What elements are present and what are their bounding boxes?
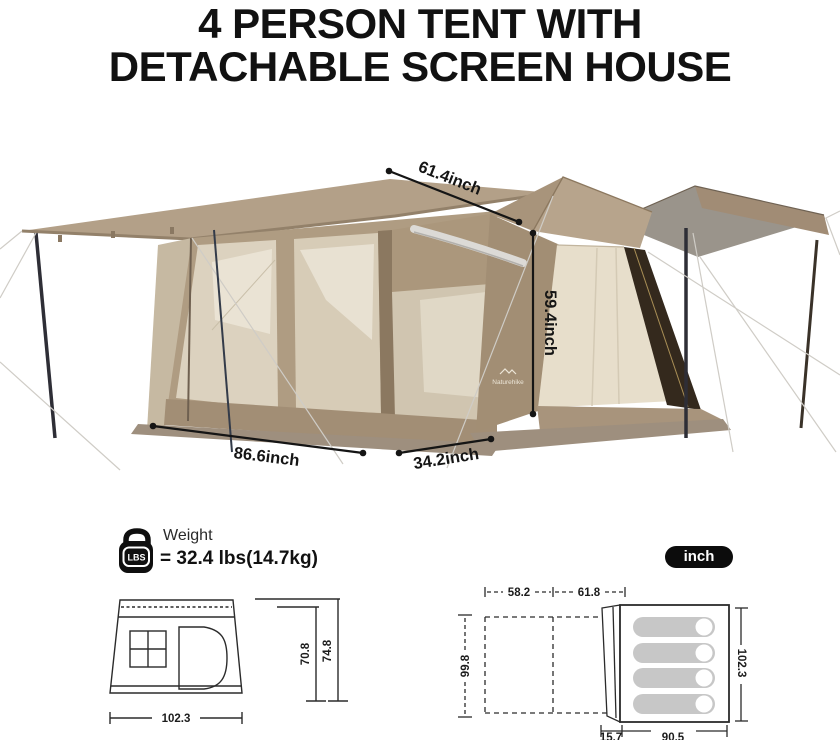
sleeping-pad xyxy=(633,643,715,663)
screen-width-label: 86.6inch xyxy=(233,444,301,470)
product-infographic: 4 PERSON TENT WITH DETACHABLE SCREEN HOU… xyxy=(0,0,840,740)
awning-tab xyxy=(170,227,174,234)
porch-footprint xyxy=(602,605,620,722)
weight-spec: Weight = 32.4 lbs(14.7kg) xyxy=(163,527,318,570)
lbs-label: LBS xyxy=(128,553,146,563)
graphics-canvas: Naturehike xyxy=(0,0,840,740)
mesh-highlight xyxy=(420,292,486,398)
sleeping-pad xyxy=(633,694,715,714)
awning-tab xyxy=(58,235,62,242)
unit-badge: inch xyxy=(665,546,733,568)
height-label: 59.4inch xyxy=(541,290,559,356)
tarp-pole xyxy=(36,233,55,438)
screen-depth-label: 99.8 xyxy=(460,654,472,677)
porch-depth-label: 15.7 xyxy=(600,732,622,740)
window-drawing xyxy=(130,631,166,667)
weight-value: = 32.4 lbs(14.7kg) xyxy=(160,547,318,570)
sleeping-pad xyxy=(633,668,715,688)
peak-height-label: 74.8 xyxy=(322,639,334,662)
dim-screen-sections: 58.2 61.8 xyxy=(485,587,625,599)
door-drawing xyxy=(179,627,227,689)
screen-section-b-label: 61.8 xyxy=(578,587,601,599)
dim-tent-depth: 102.3 xyxy=(735,608,748,721)
dim-bottom: 15.7 90.5 xyxy=(600,725,727,740)
weight-kettlebell-icon: LBS xyxy=(119,531,153,573)
side-width-label: 102.3 xyxy=(162,713,191,725)
awning-pole-rear xyxy=(801,240,817,428)
wall-height-label: 70.8 xyxy=(300,642,312,665)
tent-width-label: 90.5 xyxy=(662,732,685,740)
floor-plan-diagram: 58.2 61.8 99.8 xyxy=(458,587,748,740)
dim-screen-depth: 99.8 xyxy=(458,615,472,717)
tent-depth-label: 102.3 xyxy=(735,649,747,678)
dim-side-width: 102.3 xyxy=(110,712,242,725)
dim-wall-height: 70.8 xyxy=(277,607,326,701)
side-view-diagram: 102.3 70.8 74.8 xyxy=(110,599,348,725)
sleeping-pad xyxy=(633,617,715,637)
screen-section-a-label: 58.2 xyxy=(508,587,530,599)
tent-illustration: Naturehike xyxy=(0,177,840,470)
brand-logo-text: Naturehike xyxy=(492,379,524,386)
weight-label: Weight xyxy=(163,527,318,545)
awning-tab xyxy=(111,231,115,238)
